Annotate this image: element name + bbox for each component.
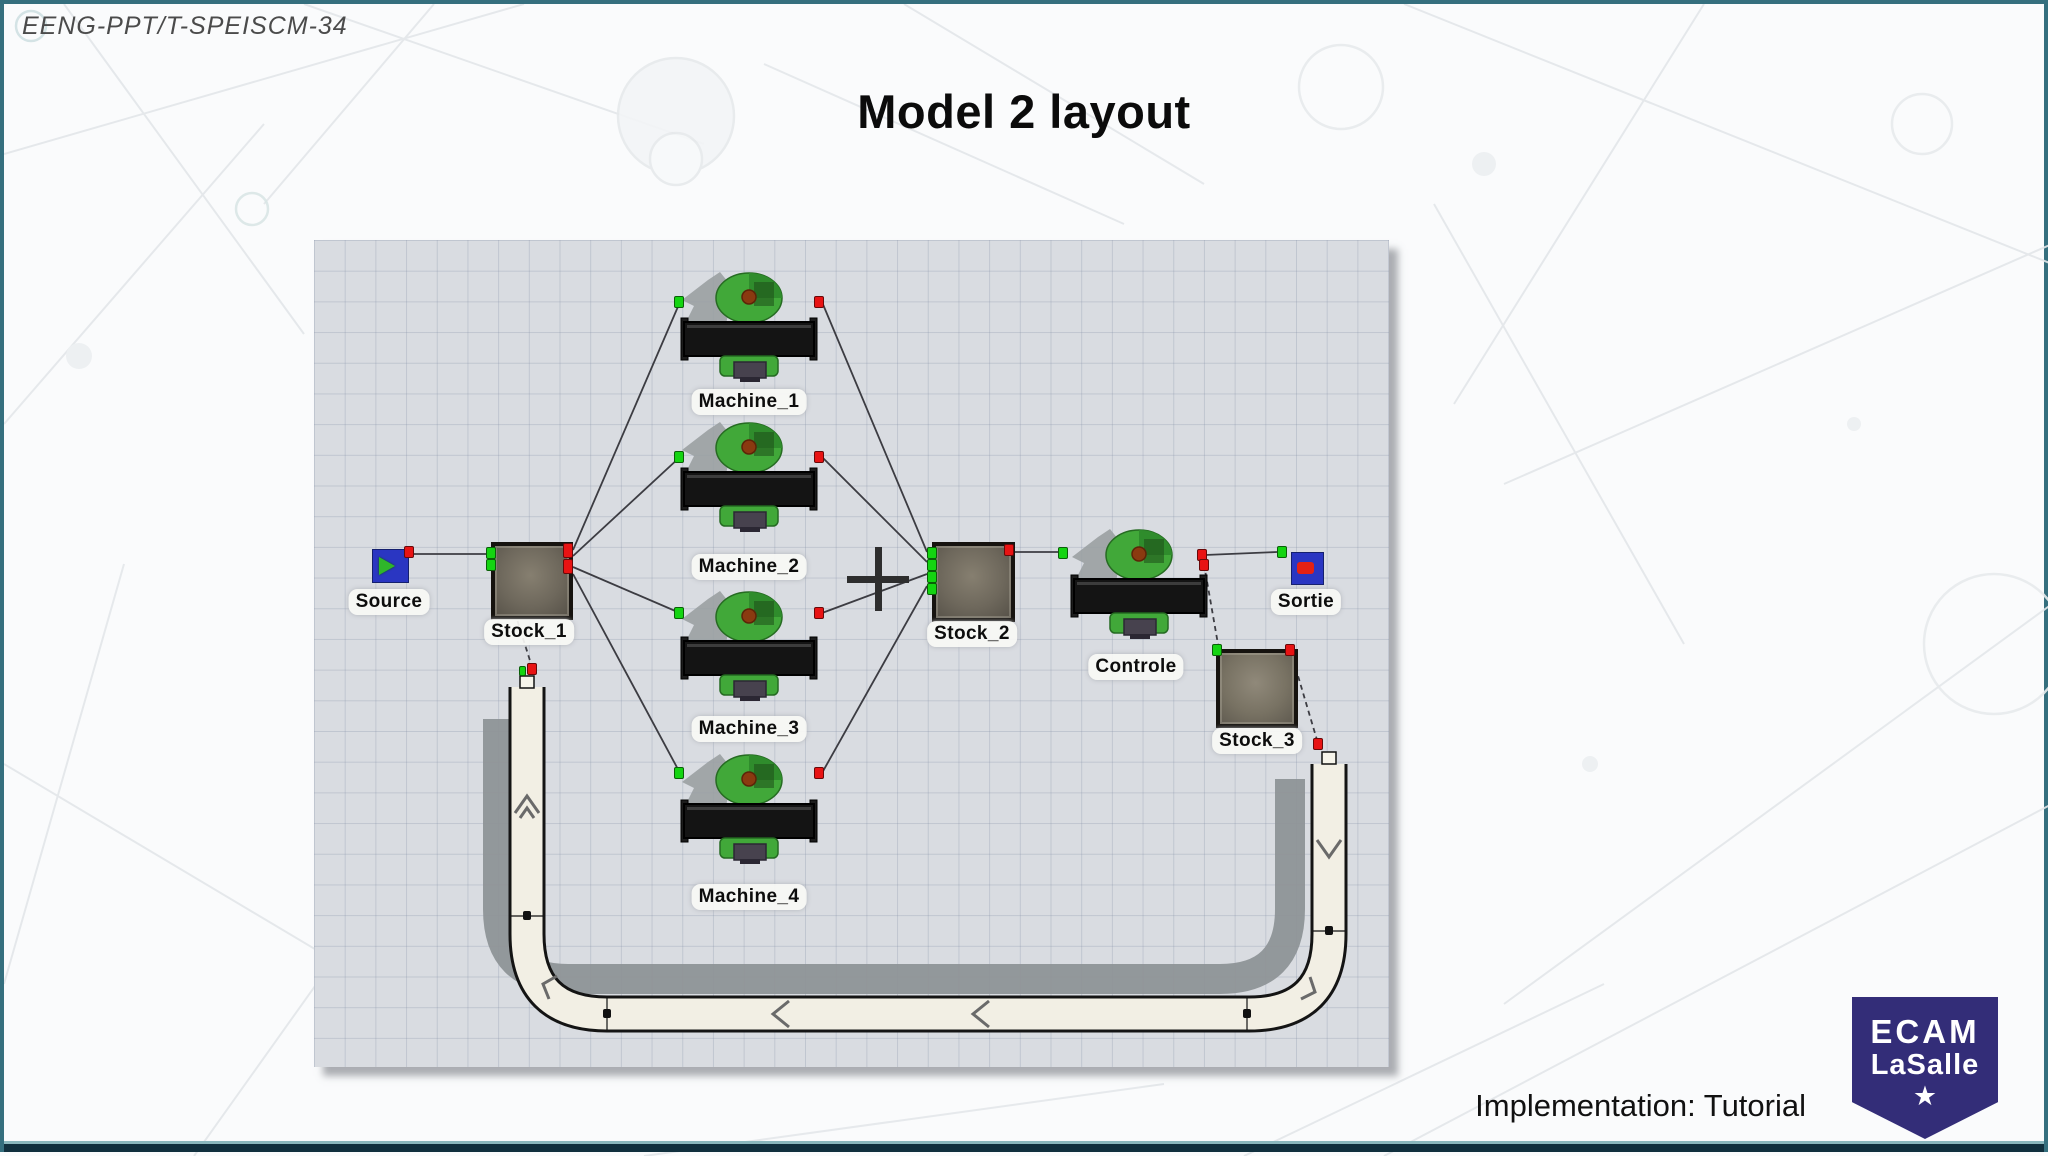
output-port-dot	[814, 607, 824, 619]
node-label-controle: Controle	[1088, 654, 1183, 680]
stock-3-icon	[1216, 649, 1298, 728]
page-title: Model 2 layout	[4, 84, 2044, 139]
drain-glyph-icon	[1297, 562, 1314, 574]
stock-1-icon	[491, 542, 573, 620]
output-port-dot	[1313, 738, 1323, 750]
node-label-machine-2: Machine_2	[692, 554, 807, 580]
node-label-machine-3: Machine_3	[692, 716, 807, 742]
node-label-source: Source	[349, 589, 430, 615]
input-port-dot	[486, 559, 496, 571]
input-port-dot	[1058, 547, 1068, 559]
input-port-dot	[674, 607, 684, 619]
output-port-dot	[1285, 644, 1295, 656]
logo-text-line2: LaSalle	[1852, 1049, 1998, 1082]
output-port-dot	[1199, 559, 1209, 571]
machine-4-icon	[674, 752, 824, 864]
input-port-dot	[927, 571, 937, 583]
crosshair-cursor-icon	[875, 547, 882, 611]
machine-2-icon	[674, 420, 824, 532]
stock-2-icon	[932, 542, 1015, 622]
sortie-icon	[1291, 552, 1324, 585]
conveyor-end-connector	[520, 676, 534, 688]
input-port-dot	[927, 547, 937, 559]
footer-note: Implementation: Tutorial	[1475, 1088, 1806, 1124]
input-port-dot	[674, 767, 684, 779]
output-port-dot	[814, 767, 824, 779]
output-port-dot	[814, 451, 824, 463]
input-port-dot	[927, 583, 937, 595]
bottom-border-bar	[4, 1141, 2044, 1152]
input-port-dot	[927, 559, 937, 571]
output-port-dot	[527, 663, 537, 675]
input-port-dot	[674, 451, 684, 463]
course-code: EENG-PPT/T-SPEISCM-34	[22, 12, 348, 41]
node-label-machine-1: Machine_1	[692, 389, 807, 415]
output-port-dot	[563, 559, 573, 574]
node-label-machine-4: Machine_4	[692, 884, 807, 910]
machine-1-icon	[674, 270, 824, 382]
star-icon: ★	[1852, 1081, 1998, 1112]
play-triangle-icon	[379, 557, 395, 575]
ecam-lasalle-logo: ECAM LaSalle ★	[1852, 997, 1998, 1139]
output-port-dot	[814, 296, 824, 308]
output-port-dot	[563, 543, 573, 558]
input-port-dot	[674, 296, 684, 308]
input-port-dot	[1212, 644, 1222, 656]
conveyor-shadow	[498, 719, 1290, 979]
output-port-dot	[1004, 544, 1014, 556]
output-port-dot	[404, 546, 414, 558]
machine-3-icon	[674, 589, 824, 701]
node-label-stock-1: Stock_1	[484, 619, 574, 645]
input-port-dot	[486, 547, 496, 559]
node-label-sortie: Sortie	[1271, 589, 1341, 615]
conveyor-end-connector	[1322, 752, 1336, 764]
slide: { "slide": { "course_code": "EENG-PPT/T-…	[0, 0, 2048, 1152]
controle-machine-icon	[1064, 527, 1214, 639]
node-label-stock-3: Stock_3	[1212, 728, 1302, 754]
node-label-stock-2: Stock_2	[927, 621, 1017, 647]
input-port-dot	[1277, 546, 1287, 558]
input-port-dot	[519, 666, 526, 676]
model-canvas: Source Stock_1 Machine_1	[314, 240, 1389, 1067]
logo-text-line1: ECAM	[1852, 1013, 1998, 1051]
